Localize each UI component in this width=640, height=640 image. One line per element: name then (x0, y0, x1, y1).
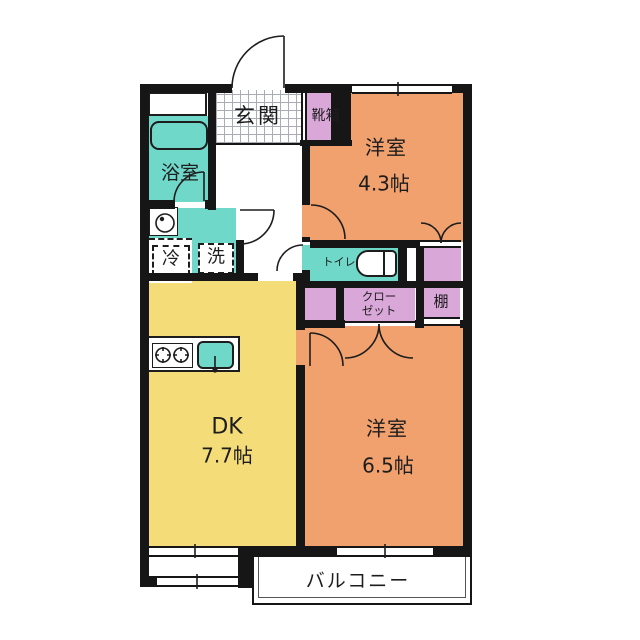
washroom-door-arc (240, 210, 274, 244)
wall-segment (296, 281, 465, 288)
wall-segment (140, 84, 232, 93)
label-washer: 洗 (207, 248, 225, 269)
toilet-door-arc (277, 245, 303, 271)
label-closet-line2: ゼット (362, 304, 397, 317)
wall-segment (302, 146, 310, 205)
wall-segment (433, 546, 472, 557)
storage-box (148, 92, 207, 116)
stove (152, 343, 193, 368)
wall-segment (208, 84, 216, 210)
wall-segment (296, 365, 305, 553)
closet-small (305, 288, 336, 320)
shelf-front-opening (424, 317, 460, 326)
floor-plan: 玄関 靴箱 浴室 冷 洗 トイレ クロー ゼット 棚 洋室 4.3帖 DK 7.… (0, 0, 640, 640)
wall-segment (293, 273, 310, 281)
label-dk-name: DK (211, 414, 242, 439)
wall-segment (302, 237, 310, 242)
label-shoe-box: 靴箱 (312, 108, 327, 124)
window-dk-south (149, 546, 238, 557)
label-room1-name: 洋室 (365, 137, 407, 160)
label-dk-size: 7.7帖 (201, 445, 253, 468)
bathtub (150, 121, 208, 150)
kitchen-sink (197, 341, 234, 369)
window-room2-balcony (337, 546, 433, 557)
toilet-tank-line (383, 252, 385, 275)
wall-segment (140, 200, 175, 209)
closet-room1-door (420, 240, 461, 248)
wall-segment (140, 84, 149, 587)
service-yard (149, 556, 238, 576)
wall-segment (460, 320, 465, 328)
window-service-yard (157, 576, 238, 587)
entrance-door-arc (232, 36, 284, 88)
label-shelf: 棚 (433, 293, 448, 310)
closet-door-line (344, 321, 415, 323)
label-toilet: トイレ (323, 257, 356, 270)
toilet-fixture (356, 250, 397, 277)
window-top (352, 84, 452, 94)
wall-segment (296, 281, 305, 330)
label-bathroom: 浴室 (161, 163, 199, 185)
wall-segment (248, 546, 337, 557)
wall-segment (140, 273, 258, 281)
wall-segment (415, 320, 424, 328)
wash-basin (149, 207, 178, 236)
label-room2-name: 洋室 (366, 418, 408, 441)
label-closet-line1: クロー (362, 290, 397, 303)
label-balcony: バルコニー (306, 571, 411, 593)
entrance-step-line (216, 143, 303, 145)
closet-room1 (424, 248, 461, 281)
wall-segment (140, 576, 157, 587)
label-fridge: 冷 (162, 250, 180, 271)
wall-segment (310, 240, 424, 248)
wall-segment (205, 200, 216, 209)
label-entrance: 玄関 (234, 104, 282, 128)
label-room1-size: 4.3帖 (358, 173, 410, 196)
label-room2-size: 6.5帖 (362, 455, 414, 478)
